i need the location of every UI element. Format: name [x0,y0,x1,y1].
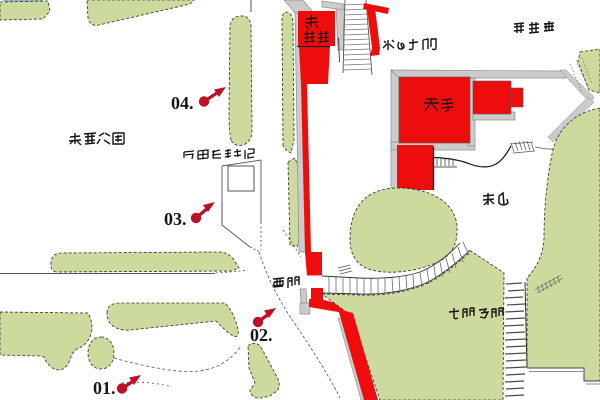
svg-text:03.: 03. [164,209,187,229]
svg-text:02.: 02. [250,325,273,345]
svg-text:04.: 04. [171,93,194,113]
svg-text:01.: 01. [93,378,116,398]
